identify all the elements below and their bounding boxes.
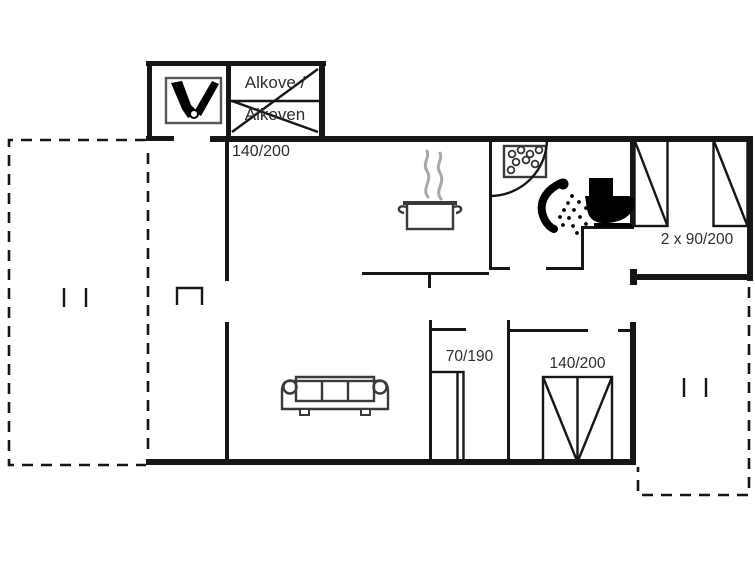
single-bed-symbol bbox=[431, 372, 464, 462]
double-bed-symbol bbox=[543, 377, 612, 462]
outer-walls bbox=[146, 61, 753, 465]
floor-plan-drawing bbox=[0, 0, 755, 566]
sofa-icon bbox=[282, 377, 388, 415]
twin-bed-symbols bbox=[635, 140, 748, 226]
alkove-bed-symbol bbox=[230, 69, 319, 132]
wall-niche bbox=[177, 288, 202, 305]
terrace-west-marks bbox=[64, 288, 86, 307]
terrace-southeast-outline bbox=[638, 287, 749, 495]
floor-plan: Alkove / Alkoven 140/200 2 x 90/200 70/1… bbox=[0, 0, 755, 566]
cooking-pot-icon bbox=[399, 151, 461, 229]
wood-stove-icon bbox=[166, 78, 221, 123]
terrace-west-outline bbox=[9, 140, 148, 465]
terrace-southeast-marks bbox=[684, 378, 706, 397]
toilet-icon bbox=[585, 178, 635, 228]
washbasin-icon bbox=[504, 146, 546, 177]
